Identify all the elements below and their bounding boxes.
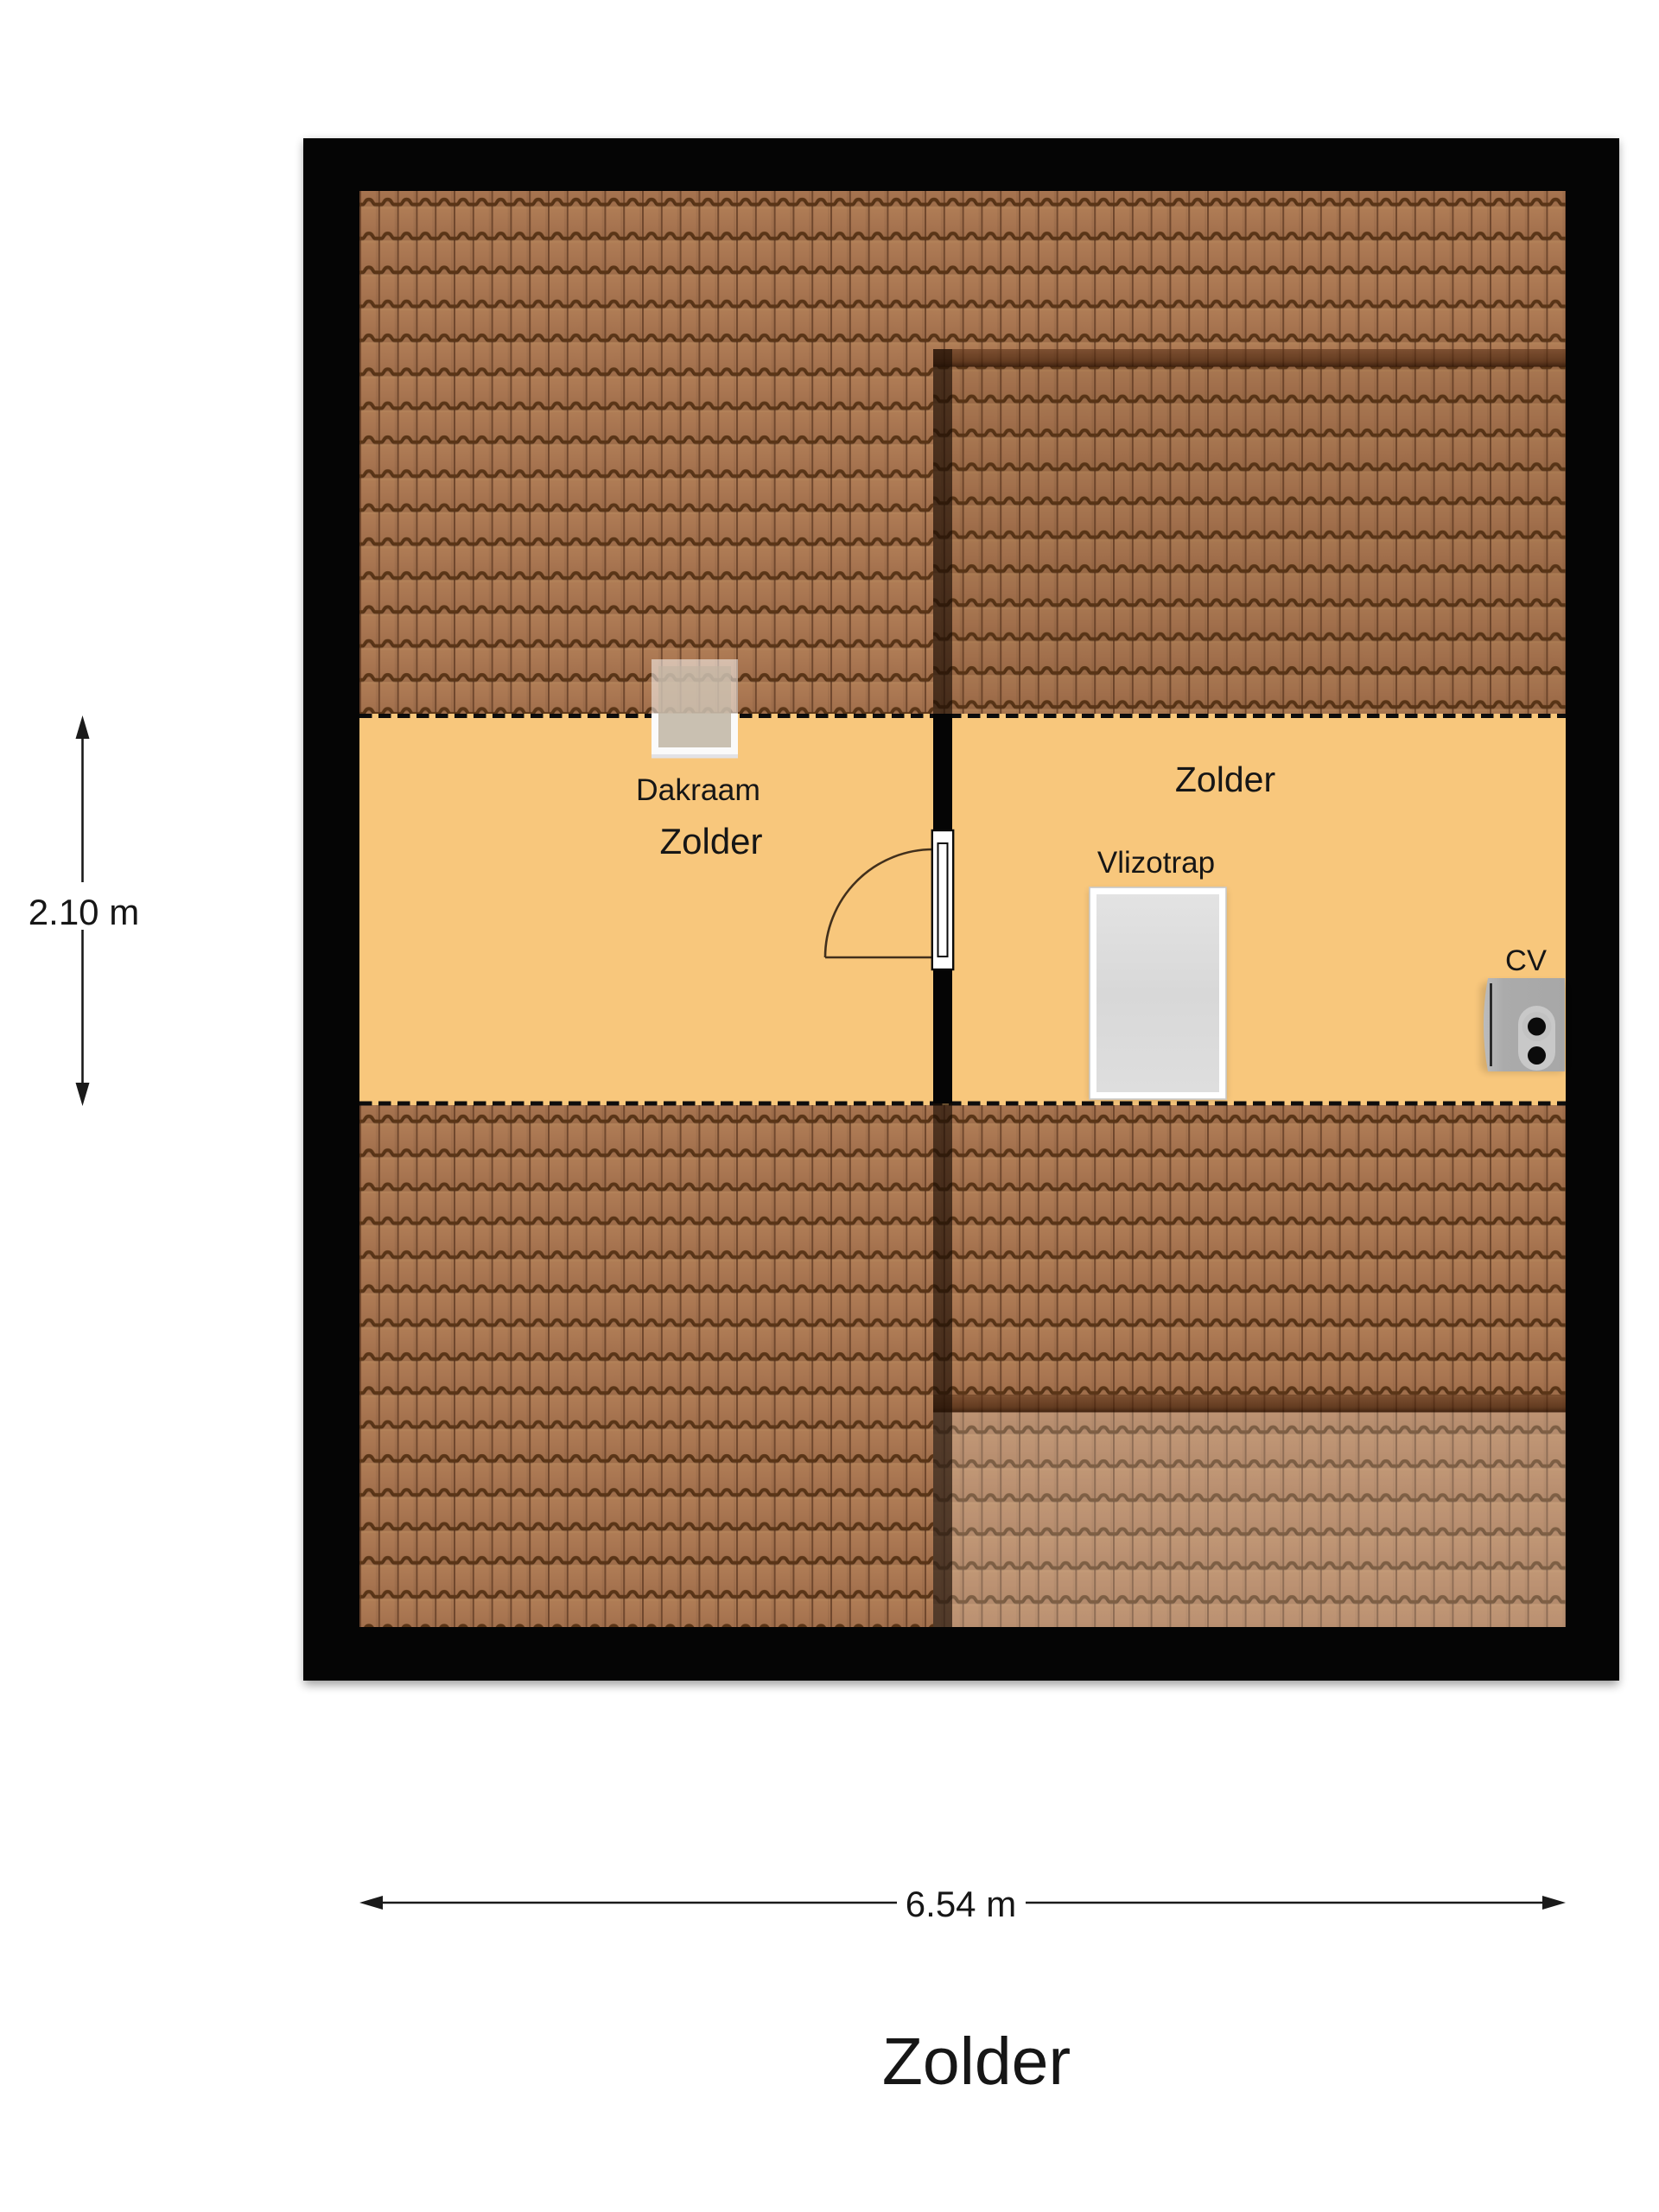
svg-text:Zolder: Zolder [882,2024,1071,2099]
svg-text:Dakraam: Dakraam [636,772,760,807]
svg-text:2.10 m: 2.10 m [29,892,139,932]
svg-text:Zolder: Zolder [659,821,762,861]
svg-text:6.54 m: 6.54 m [906,1884,1016,1924]
svg-text:Zolder: Zolder [1175,760,1275,799]
svg-text:CV: CV [1505,944,1547,977]
svg-text:Vlizotrap: Vlizotrap [1097,846,1215,880]
